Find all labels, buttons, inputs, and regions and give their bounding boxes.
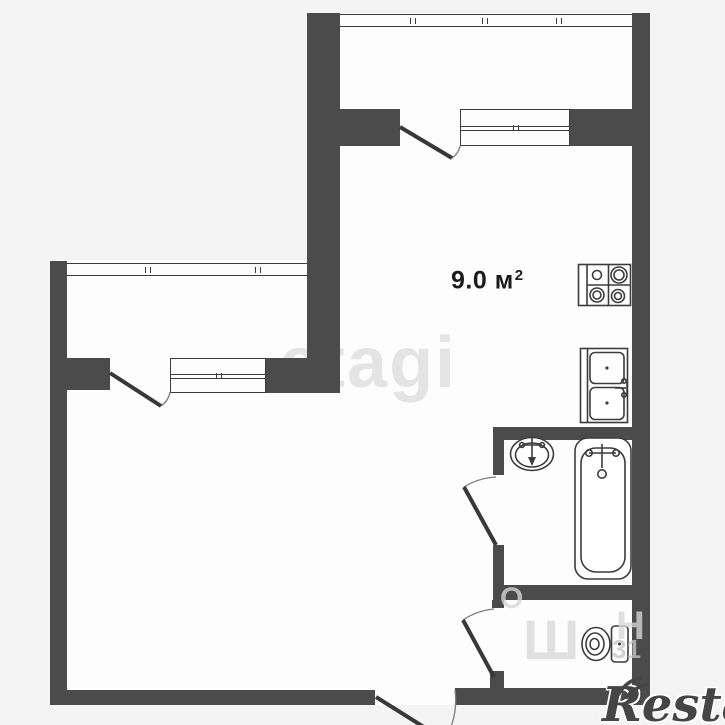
watermark-restate: Restate (602, 681, 725, 725)
window-balcony-top (340, 14, 632, 27)
window-mullion (556, 18, 562, 24)
wall-central-corner-block (266, 358, 340, 393)
kitchen-area-sup: 2 (515, 267, 524, 284)
wall-kitchen-balcony-right (570, 109, 632, 146)
window-mullion (145, 267, 151, 273)
window-mullion (255, 267, 261, 273)
wall-bottom-left (50, 690, 375, 705)
wall-livingroom-balcony-left (67, 358, 110, 390)
wall-central (307, 13, 340, 358)
watermark-fragment: 31 (612, 636, 641, 662)
kitchen-area-value: 9.0 м (451, 266, 514, 294)
watermark-fragment: Ш (523, 612, 579, 668)
window-livingroom-top (67, 263, 307, 276)
wall-bathroom-left-upper (493, 440, 504, 475)
wall-left (50, 261, 67, 705)
floor-plan: etagi (0, 0, 725, 725)
watermark-fragment: О (500, 584, 523, 614)
window-mullion (482, 18, 488, 24)
wall-kitchen-balcony-left (340, 109, 400, 146)
wall-wc-left-bottom-stub (490, 671, 504, 688)
window-kitchen-balcony-block (460, 109, 570, 146)
brand-swoosh-icon (614, 673, 654, 699)
window-mullion (513, 125, 519, 131)
wall-bathroom-top (493, 427, 632, 440)
kitchen-area-label: 9.0 м2 (451, 266, 523, 295)
window-mullion (216, 373, 222, 379)
window-livingroom-balcony-block (170, 358, 266, 393)
window-mullion (410, 18, 416, 24)
wall-right (632, 13, 650, 705)
